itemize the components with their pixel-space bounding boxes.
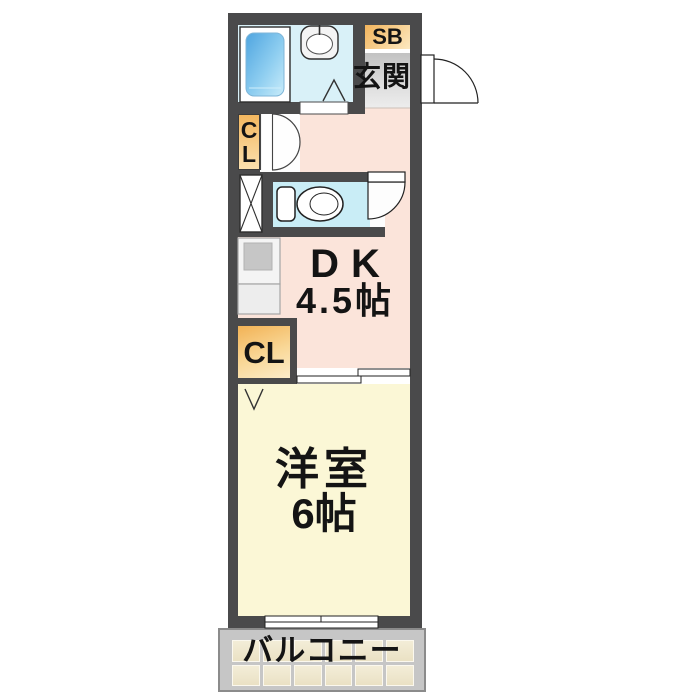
dk-floor-beside-toilet xyxy=(385,172,410,237)
dk-floor-upper xyxy=(300,114,410,172)
western-room-label: 洋室 xyxy=(238,445,410,495)
entrance-label: 玄関 xyxy=(348,60,416,94)
upper-closet-label-line1: C xyxy=(241,118,258,142)
dk-room-divider-area xyxy=(297,368,410,384)
toilet-doorway xyxy=(370,182,385,227)
lower-closet-label: CL xyxy=(238,333,290,373)
balcony-label: バルコニー xyxy=(230,632,414,670)
bathroom-floor xyxy=(238,25,353,102)
floor-plan: バルコニー xyxy=(0,0,700,700)
western-room-size-label: 6帖 xyxy=(238,491,410,537)
toilet-floor xyxy=(273,182,370,227)
entrance-door-icon xyxy=(421,55,478,103)
upper-closet-label-line2: L xyxy=(242,142,256,166)
upper-closet-label: C L xyxy=(238,114,260,170)
upper-closet-door-area xyxy=(260,114,300,172)
shoe-box-label: SB xyxy=(365,25,410,49)
dk-size-label: 4.5帖 xyxy=(260,280,430,322)
